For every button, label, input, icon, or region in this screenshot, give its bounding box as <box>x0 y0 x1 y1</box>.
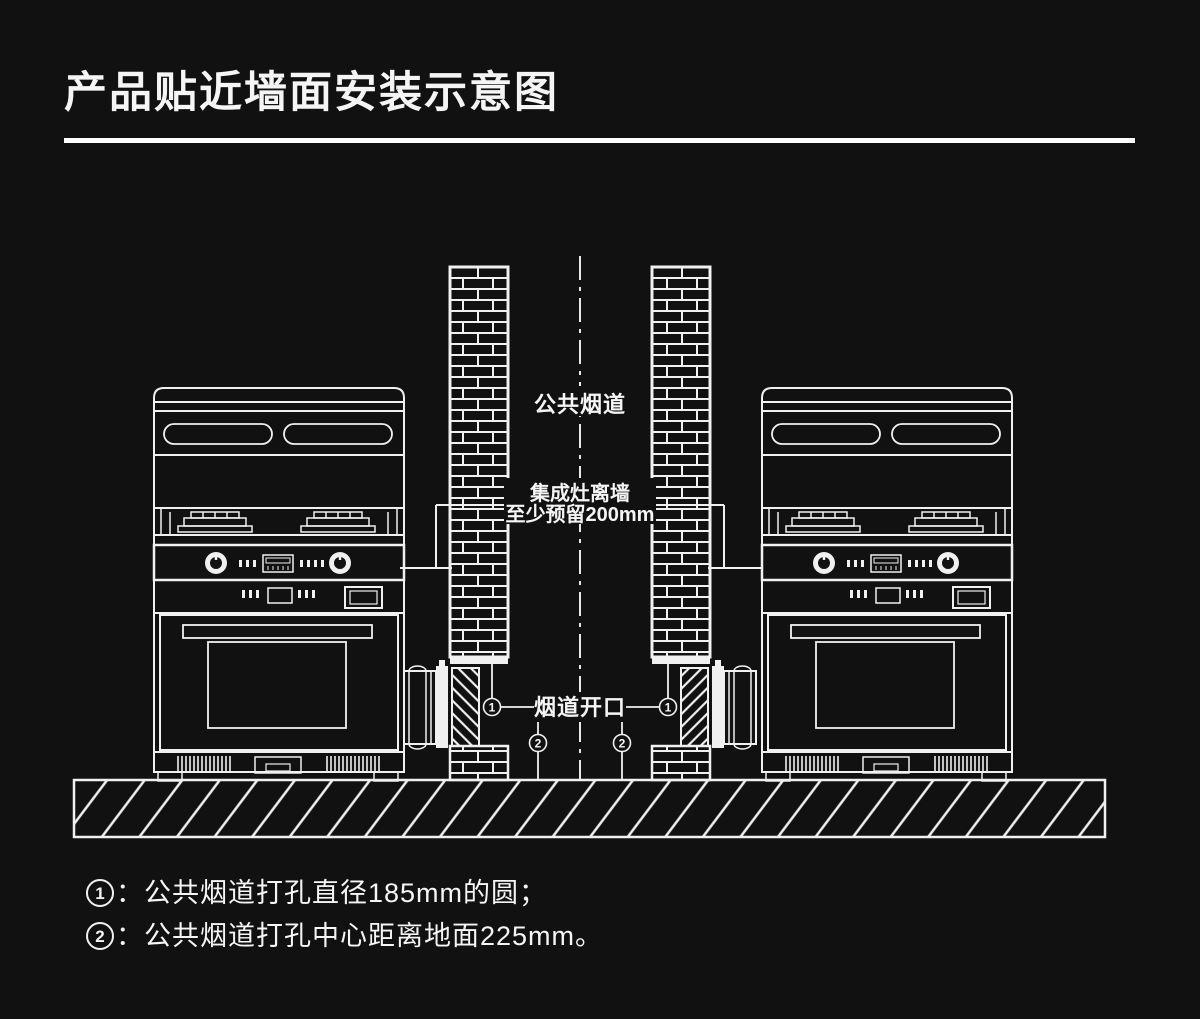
marker-1-right-number: 1 <box>665 701 672 715</box>
floor-hatched-slab <box>74 780 1105 837</box>
marker-1-left-number: 1 <box>489 701 496 715</box>
footnote-2: 2 ：公共烟道打孔中心距离地面225mm。 <box>87 921 603 951</box>
flue-opening-label: 烟道开口 <box>534 695 626 720</box>
flue-label: 公共烟道 <box>534 392 626 417</box>
footnote-2-number: 2 <box>95 927 104 946</box>
marker-2-right-number: 2 <box>619 737 626 751</box>
footnote-1-text: ：公共烟道打孔直径185mm的圆； <box>116 878 547 908</box>
clearance-label-line2: 至少预留200mm <box>506 502 655 526</box>
title-underline <box>64 138 1135 143</box>
page-title: 产品贴近墙面安装示意图 <box>64 69 559 117</box>
clearance-label-line1: 集成灶离墙 <box>529 481 630 505</box>
installation-diagram-page: 产品贴近墙面安装示意图 公共烟道 集成灶离墙 至少预留200mm 烟道开口 <box>0 0 1200 1019</box>
footnote-1-number: 1 <box>95 884 104 903</box>
installation-diagram: 产品贴近墙面安装示意图 公共烟道 集成灶离墙 至少预留200mm 烟道开口 <box>0 0 1200 1019</box>
marker-2-left-number: 2 <box>535 737 542 751</box>
footnote-1: 1 ：公共烟道打孔直径185mm的圆； <box>87 878 547 908</box>
footnote-2-text: ：公共烟道打孔中心距离地面225mm。 <box>116 921 603 951</box>
